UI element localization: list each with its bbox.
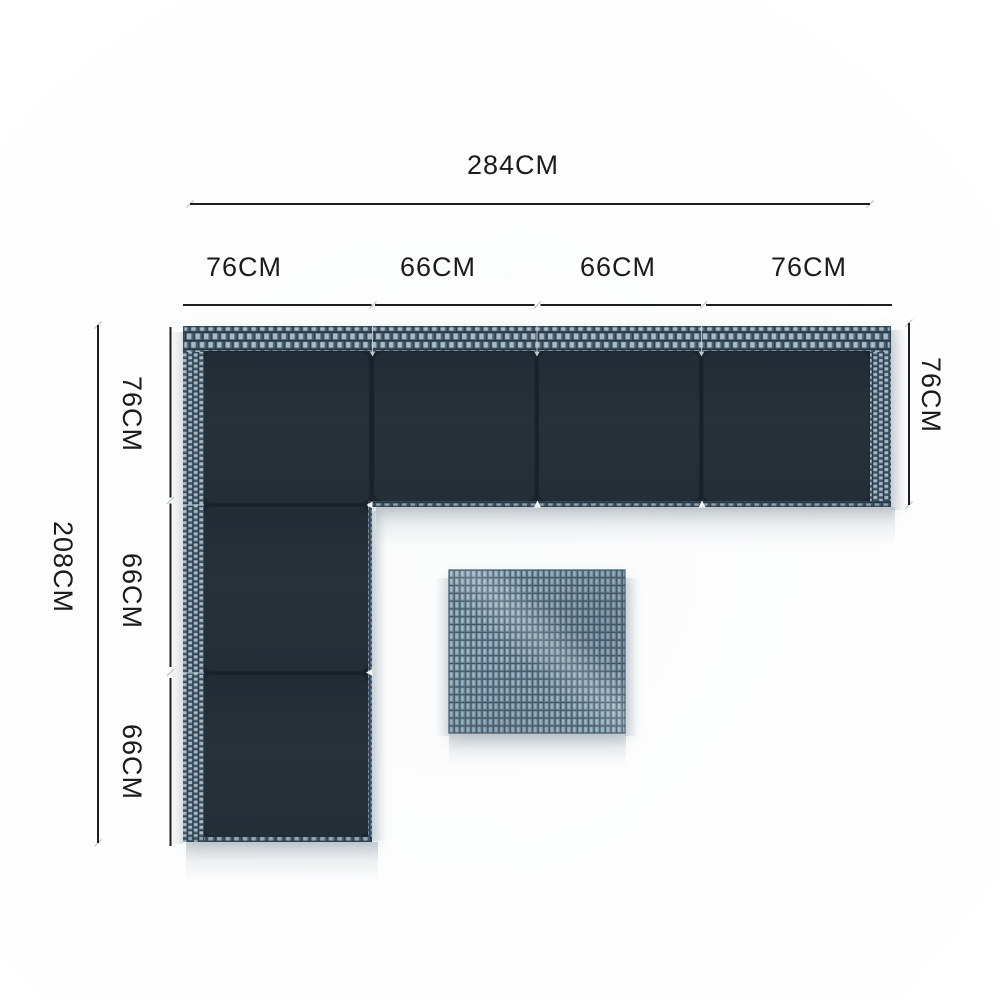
svg-text:76CM: 76CM xyxy=(771,252,847,282)
svg-text:76CM: 76CM xyxy=(206,252,282,282)
svg-text:76CM: 76CM xyxy=(916,357,946,433)
svg-text:208CM: 208CM xyxy=(48,521,78,613)
svg-text:66CM: 66CM xyxy=(400,252,476,282)
svg-text:66CM: 66CM xyxy=(117,724,147,800)
svg-text:66CM: 66CM xyxy=(117,553,147,629)
svg-text:66CM: 66CM xyxy=(580,252,656,282)
svg-text:76CM: 76CM xyxy=(117,376,147,452)
svg-text:284CM: 284CM xyxy=(467,150,559,180)
